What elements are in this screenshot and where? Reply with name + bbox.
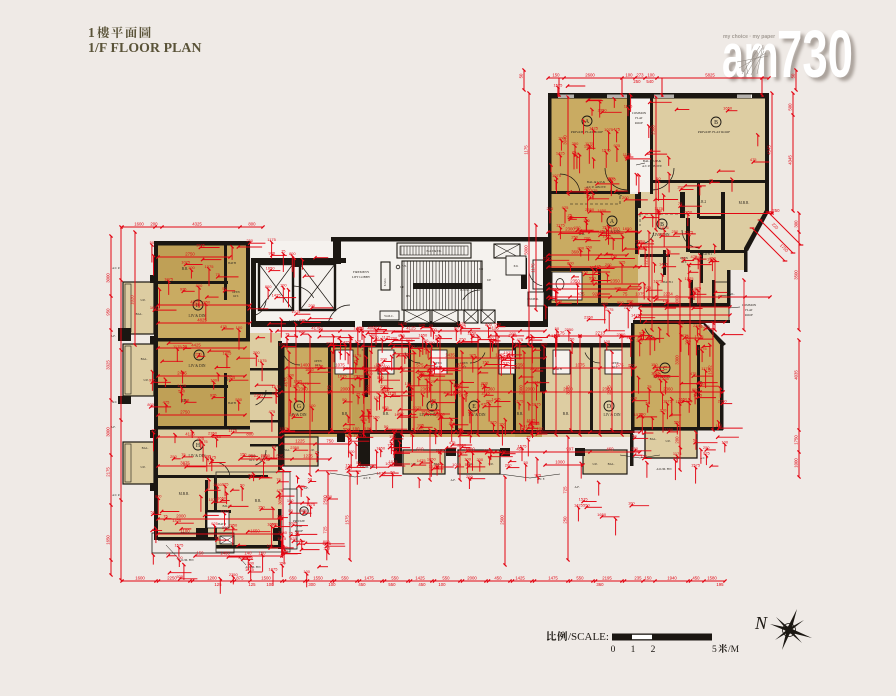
svg-text:150: 150 (240, 451, 247, 456)
svg-text:475: 475 (516, 337, 523, 342)
svg-text:250: 250 (572, 141, 579, 146)
svg-text:50: 50 (791, 73, 796, 78)
svg-text:925: 925 (197, 436, 204, 441)
svg-text:4035: 4035 (794, 370, 799, 380)
svg-text:3000: 3000 (106, 427, 111, 437)
svg-text:925: 925 (210, 393, 217, 398)
svg-text:195: 195 (716, 582, 724, 587)
svg-text:650: 650 (289, 575, 297, 580)
svg-text:75: 75 (285, 331, 290, 336)
svg-text:D: D (607, 404, 611, 410)
svg-text:1425: 1425 (492, 397, 502, 402)
svg-text:3300: 3300 (675, 355, 680, 365)
svg-text:75: 75 (276, 477, 281, 482)
svg-text:1650: 1650 (723, 106, 733, 111)
svg-text:1075: 1075 (394, 412, 404, 417)
svg-text:150: 150 (258, 504, 265, 509)
svg-text:1: 1 (631, 645, 636, 655)
svg-text:925: 925 (290, 536, 297, 541)
svg-text:2350: 2350 (664, 427, 674, 432)
svg-text:475: 475 (163, 400, 170, 405)
svg-text:100: 100 (647, 72, 655, 77)
svg-text:1500: 1500 (261, 575, 271, 580)
svg-text:525: 525 (276, 453, 284, 458)
svg-text:550: 550 (589, 276, 596, 281)
svg-text:50: 50 (183, 344, 188, 349)
svg-text:100: 100 (236, 325, 243, 330)
svg-text:N: N (754, 613, 768, 633)
svg-text:2875: 2875 (607, 385, 612, 395)
svg-text:1650: 1650 (305, 367, 315, 372)
svg-text:U.P.: U.P. (143, 378, 148, 382)
svg-text:2: 2 (651, 645, 656, 655)
svg-text:100: 100 (210, 377, 217, 382)
svg-text:W.M.C.: W.M.C. (384, 314, 394, 318)
svg-text:3675: 3675 (327, 385, 332, 395)
svg-text:1175: 1175 (315, 364, 324, 369)
svg-text:100: 100 (464, 456, 471, 461)
svg-text:150: 150 (290, 412, 297, 417)
svg-text:UP: UP (400, 285, 404, 289)
svg-text:475: 475 (269, 409, 276, 414)
svg-text:100: 100 (721, 439, 728, 444)
svg-text:1075: 1075 (663, 399, 673, 404)
svg-text:1575: 1575 (518, 443, 528, 448)
svg-text:/M: /M (728, 645, 740, 655)
svg-text:3000: 3000 (106, 273, 111, 283)
svg-text:150: 150 (433, 409, 440, 414)
svg-text:1425: 1425 (222, 351, 232, 356)
svg-text:A/C P. ABOVE: A/C P. ABOVE (642, 164, 662, 168)
svg-text:475: 475 (220, 324, 227, 329)
svg-text:1650: 1650 (250, 528, 260, 533)
svg-text:273: 273 (636, 72, 644, 77)
svg-text:475: 475 (276, 488, 283, 493)
svg-text:2350: 2350 (208, 431, 218, 436)
svg-text:1425: 1425 (693, 393, 703, 398)
svg-text:925: 925 (382, 405, 389, 410)
svg-text:550: 550 (388, 582, 396, 587)
svg-text:925: 925 (535, 472, 542, 477)
svg-text:1650: 1650 (597, 512, 607, 517)
svg-text:800: 800 (147, 402, 154, 407)
svg-text:250: 250 (323, 546, 330, 551)
svg-text:550: 550 (406, 338, 413, 343)
svg-text:2195: 2195 (602, 575, 612, 580)
svg-text:100: 100 (448, 421, 455, 426)
svg-text:1075: 1075 (626, 335, 636, 340)
svg-text:475: 475 (299, 317, 306, 322)
svg-text:925: 925 (398, 333, 405, 338)
svg-text:BAL.: BAL. (608, 462, 615, 466)
svg-text:75: 75 (623, 291, 628, 296)
svg-text:1575: 1575 (589, 188, 599, 193)
svg-text:150: 150 (196, 550, 204, 555)
svg-text:1075: 1075 (452, 462, 462, 467)
svg-text:1175: 1175 (353, 353, 362, 358)
svg-text:200: 200 (150, 221, 158, 226)
svg-text:2300: 2300 (651, 125, 656, 135)
svg-text:1175: 1175 (556, 223, 565, 228)
svg-text:1/F FLOOR PLAN: 1/F FLOOR PLAN (88, 40, 202, 55)
svg-text:150: 150 (405, 381, 412, 386)
svg-text:250: 250 (426, 368, 433, 373)
svg-text:A/C F.: A/C F. (363, 476, 371, 480)
svg-text:U.P.: U.P. (665, 439, 670, 443)
svg-text:50: 50 (575, 280, 580, 285)
svg-text:100: 100 (456, 430, 463, 435)
svg-text:730: 730 (777, 17, 853, 92)
svg-text:450: 450 (494, 575, 502, 580)
svg-text:75: 75 (281, 249, 286, 254)
svg-text:925: 925 (469, 352, 476, 357)
svg-text:75: 75 (526, 435, 531, 440)
svg-text:M.B.R.: M.B.R. (739, 201, 750, 205)
svg-text:550: 550 (631, 446, 638, 451)
svg-text:A/C P.: A/C P. (112, 400, 120, 404)
svg-text:550: 550 (341, 575, 349, 580)
svg-text:50: 50 (681, 256, 686, 261)
svg-text:150: 150 (574, 225, 581, 230)
svg-text:1075: 1075 (288, 521, 298, 526)
svg-text:150: 150 (287, 498, 294, 503)
svg-text:2750: 2750 (180, 409, 190, 414)
svg-text:1075: 1075 (459, 393, 469, 398)
svg-text:200: 200 (287, 372, 294, 377)
svg-text:1075: 1075 (526, 335, 536, 340)
svg-text:925: 925 (222, 481, 229, 486)
svg-text:1075: 1075 (602, 234, 612, 239)
svg-text:2350: 2350 (616, 332, 626, 337)
svg-text:100: 100 (438, 582, 446, 587)
svg-text:1075: 1075 (385, 461, 395, 466)
svg-text:50: 50 (392, 427, 397, 432)
svg-text:2000: 2000 (467, 575, 477, 580)
svg-text:475: 475 (613, 127, 620, 132)
svg-text:2350: 2350 (543, 255, 553, 260)
svg-text:1425: 1425 (659, 262, 669, 267)
svg-text:450: 450 (418, 582, 426, 587)
svg-text:1600: 1600 (135, 575, 145, 580)
svg-text:100: 100 (677, 321, 684, 326)
svg-text:100: 100 (325, 494, 332, 499)
svg-text:1075: 1075 (532, 401, 542, 406)
svg-text:550: 550 (377, 375, 384, 380)
svg-text:925: 925 (490, 420, 497, 425)
svg-text:1075: 1075 (205, 264, 215, 269)
svg-text:550: 550 (674, 419, 681, 424)
svg-text:75: 75 (709, 177, 714, 182)
svg-text:5: 5 (712, 645, 717, 655)
svg-text:75: 75 (289, 531, 294, 536)
svg-text:450: 450 (358, 582, 366, 587)
svg-text:500: 500 (788, 103, 793, 111)
svg-text:FIREMEN'S: FIREMEN'S (353, 270, 370, 274)
svg-text:1425: 1425 (533, 429, 543, 434)
svg-text:475: 475 (690, 371, 697, 376)
svg-text:200: 200 (505, 463, 512, 468)
svg-text:4325: 4325 (192, 221, 202, 226)
svg-text:1175: 1175 (436, 448, 445, 453)
svg-text:FLAT: FLAT (745, 308, 753, 312)
svg-text:1650: 1650 (623, 226, 633, 231)
svg-text:100: 100 (303, 569, 310, 574)
svg-text:250: 250 (601, 301, 608, 306)
svg-text:1850: 1850 (610, 226, 620, 231)
svg-text:925: 925 (644, 285, 651, 290)
svg-text:75: 75 (361, 391, 366, 396)
svg-text:475: 475 (449, 440, 456, 445)
svg-text:1175: 1175 (388, 391, 397, 396)
svg-text:1175: 1175 (701, 366, 710, 371)
svg-text:50: 50 (150, 509, 155, 514)
svg-text:1600: 1600 (134, 221, 144, 226)
svg-text:50: 50 (150, 240, 155, 245)
svg-text:550: 550 (457, 450, 464, 455)
svg-text:50: 50 (645, 400, 650, 405)
svg-text:1425: 1425 (415, 575, 425, 580)
svg-text:150: 150 (499, 422, 506, 427)
svg-text:BAL.: BAL. (650, 437, 657, 441)
svg-text:2000: 2000 (525, 386, 535, 391)
svg-text:2750: 2750 (185, 251, 195, 256)
svg-text:1425: 1425 (272, 293, 282, 298)
svg-text:75: 75 (215, 272, 220, 277)
svg-text:1175: 1175 (228, 428, 237, 433)
svg-text:200: 200 (468, 409, 475, 414)
svg-text:150: 150 (373, 414, 380, 419)
svg-text:550: 550 (442, 575, 450, 580)
svg-text:150: 150 (585, 245, 592, 250)
svg-text:800: 800 (485, 322, 492, 327)
svg-text:2210: 2210 (644, 255, 649, 265)
svg-text:50: 50 (435, 334, 440, 339)
svg-text:1075: 1075 (338, 374, 348, 379)
svg-text:2600: 2600 (519, 385, 524, 395)
svg-text:250: 250 (183, 397, 190, 402)
svg-text:925: 925 (176, 574, 183, 579)
svg-text:200: 200 (476, 457, 483, 462)
svg-text:300: 300 (308, 582, 316, 587)
svg-text:150: 150 (428, 340, 435, 345)
svg-text:75: 75 (166, 551, 171, 556)
svg-text:50: 50 (215, 535, 220, 540)
svg-text:550: 550 (235, 397, 242, 402)
svg-text:75: 75 (568, 213, 573, 218)
svg-text:1425: 1425 (556, 151, 566, 156)
svg-text:250: 250 (571, 235, 578, 240)
svg-text:725: 725 (563, 486, 568, 494)
svg-text:1650: 1650 (427, 456, 437, 461)
svg-text:LIV & DIN: LIV & DIN (189, 364, 206, 368)
svg-text:1650: 1650 (532, 380, 542, 385)
svg-text:1575: 1575 (579, 497, 589, 502)
svg-text:100: 100 (625, 72, 633, 77)
svg-text:1425: 1425 (172, 518, 182, 523)
svg-text:100: 100 (267, 543, 274, 548)
svg-text:1425: 1425 (589, 126, 599, 131)
svg-text:2350: 2350 (718, 399, 728, 404)
svg-text:BAL.& U.P.&: BAL.& U.P.& (587, 180, 606, 184)
svg-text:1650: 1650 (376, 445, 386, 450)
svg-text:F.H.: F.H. (402, 264, 407, 268)
svg-text:250: 250 (170, 454, 177, 459)
svg-text:1650: 1650 (418, 333, 428, 338)
svg-text:75: 75 (163, 514, 168, 519)
svg-text:3500: 3500 (794, 270, 799, 280)
svg-text:50: 50 (523, 460, 528, 465)
svg-text:75: 75 (420, 390, 425, 395)
svg-text:200: 200 (509, 331, 516, 336)
svg-text:250: 250 (246, 238, 253, 243)
svg-text:550: 550 (494, 322, 501, 327)
svg-text:1575: 1575 (244, 554, 254, 559)
svg-text:150: 150 (480, 383, 487, 388)
svg-text:460: 460 (606, 446, 614, 451)
svg-text:925: 925 (652, 295, 659, 300)
svg-text:550: 550 (583, 502, 590, 507)
svg-text:250: 250 (703, 445, 710, 450)
svg-text:550: 550 (576, 575, 584, 580)
svg-text:2350: 2350 (564, 327, 574, 332)
svg-text:1750: 1750 (794, 435, 799, 445)
svg-text:1020: 1020 (130, 295, 135, 305)
svg-text:BATH: BATH (228, 261, 237, 265)
svg-text:2350: 2350 (584, 315, 594, 320)
svg-text:250: 250 (628, 363, 635, 368)
svg-text:1000: 1000 (794, 458, 799, 468)
svg-text:1650: 1650 (266, 266, 276, 271)
svg-text:am: am (722, 21, 778, 90)
svg-text:1075: 1075 (604, 127, 614, 132)
svg-text:925: 925 (211, 521, 218, 526)
svg-text:1175: 1175 (267, 237, 276, 242)
svg-text:BAL.: BAL. (142, 446, 149, 450)
svg-text:1940: 1940 (667, 575, 677, 580)
svg-text:800: 800 (271, 522, 278, 527)
svg-text:4425: 4425 (191, 342, 201, 347)
svg-text:550: 550 (398, 366, 405, 371)
svg-text:2350: 2350 (201, 299, 211, 304)
svg-text:725: 725 (323, 526, 328, 534)
svg-text:1575: 1575 (680, 333, 690, 338)
svg-text:2713: 2713 (595, 330, 605, 335)
svg-text:G: G (297, 404, 301, 410)
svg-text:235: 235 (634, 575, 642, 580)
svg-text:250: 250 (419, 371, 426, 376)
svg-text:1075: 1075 (278, 342, 288, 347)
svg-text:925: 925 (269, 250, 276, 255)
svg-text:4675: 4675 (284, 377, 289, 387)
svg-text:925: 925 (562, 205, 569, 210)
svg-text:250: 250 (552, 287, 559, 292)
svg-text:2350: 2350 (254, 393, 264, 398)
svg-text:100: 100 (558, 136, 565, 141)
svg-text:950: 950 (106, 308, 111, 316)
svg-text:PRIVATE FLAT ROOF: PRIVATE FLAT ROOF (571, 130, 603, 134)
svg-text:100: 100 (355, 338, 362, 343)
svg-text:1425: 1425 (177, 383, 187, 388)
svg-text:750: 750 (326, 438, 334, 443)
svg-text:475: 475 (577, 291, 585, 296)
svg-text:50: 50 (632, 433, 637, 438)
svg-text:200: 200 (622, 195, 629, 200)
svg-text:50: 50 (240, 483, 245, 488)
svg-text:250: 250 (672, 229, 679, 234)
svg-text:B.R.: B.R. (255, 499, 262, 503)
svg-text:1200: 1200 (207, 575, 217, 580)
svg-text:200: 200 (253, 350, 260, 355)
svg-text:4126: 4126 (185, 431, 195, 436)
svg-text:1460: 1460 (220, 550, 230, 555)
svg-text:1175: 1175 (527, 417, 536, 422)
svg-text:800: 800 (627, 298, 634, 303)
svg-text:100: 100 (628, 501, 635, 506)
svg-text:1650: 1650 (678, 397, 688, 402)
svg-text:250: 250 (772, 208, 780, 213)
svg-text:4125: 4125 (406, 325, 416, 330)
svg-text:E.M.C.: E.M.C. (527, 298, 535, 301)
svg-text:2350: 2350 (585, 207, 595, 212)
svg-text:150: 150 (482, 360, 489, 365)
svg-text:75: 75 (247, 304, 252, 309)
svg-text:U.P.: U.P. (140, 298, 145, 302)
svg-text:B.R.: B.R. (383, 412, 390, 416)
svg-text:ROOF: ROOF (745, 313, 754, 317)
svg-text:925: 925 (417, 422, 424, 427)
svg-text:550: 550 (378, 368, 385, 373)
svg-text:1175: 1175 (624, 103, 633, 108)
svg-text:50: 50 (686, 338, 691, 343)
svg-text:2350: 2350 (272, 390, 282, 395)
svg-text:800: 800 (541, 342, 548, 347)
svg-text:COMMON: COMMON (632, 111, 647, 115)
svg-text:1475: 1475 (548, 575, 558, 580)
svg-text:800: 800 (265, 284, 272, 289)
svg-text:50: 50 (356, 460, 361, 465)
svg-text:800: 800 (692, 387, 699, 392)
svg-text:1075: 1075 (164, 276, 174, 281)
svg-text:A.F.: A.F. (450, 478, 455, 482)
svg-text:1075: 1075 (552, 173, 562, 178)
svg-text:2350: 2350 (229, 572, 239, 577)
svg-text:1075: 1075 (181, 260, 191, 265)
svg-text:150: 150 (552, 72, 560, 77)
svg-text:1575: 1575 (506, 353, 516, 358)
svg-text:100: 100 (630, 396, 637, 401)
svg-text:610: 610 (416, 446, 424, 451)
svg-text:1425: 1425 (457, 321, 467, 326)
svg-text:1175: 1175 (524, 145, 529, 155)
svg-text:1425: 1425 (515, 575, 525, 580)
svg-text:150: 150 (500, 449, 507, 454)
svg-text:925: 925 (703, 451, 710, 456)
svg-text:1075: 1075 (196, 243, 206, 248)
svg-text:1575: 1575 (685, 276, 695, 281)
svg-text:50: 50 (390, 470, 395, 475)
svg-text:200: 200 (298, 484, 305, 489)
svg-text:300: 300 (794, 220, 799, 228)
svg-text:50: 50 (318, 326, 323, 331)
svg-text:1075: 1075 (269, 566, 279, 571)
svg-text:UP: UP (487, 278, 491, 282)
svg-text:1650: 1650 (150, 305, 160, 310)
svg-text:1425: 1425 (574, 503, 584, 508)
svg-text:1435: 1435 (445, 352, 455, 357)
svg-text:1650: 1650 (217, 496, 227, 501)
svg-text:2360: 2360 (663, 386, 673, 391)
svg-text:250: 250 (660, 408, 667, 413)
